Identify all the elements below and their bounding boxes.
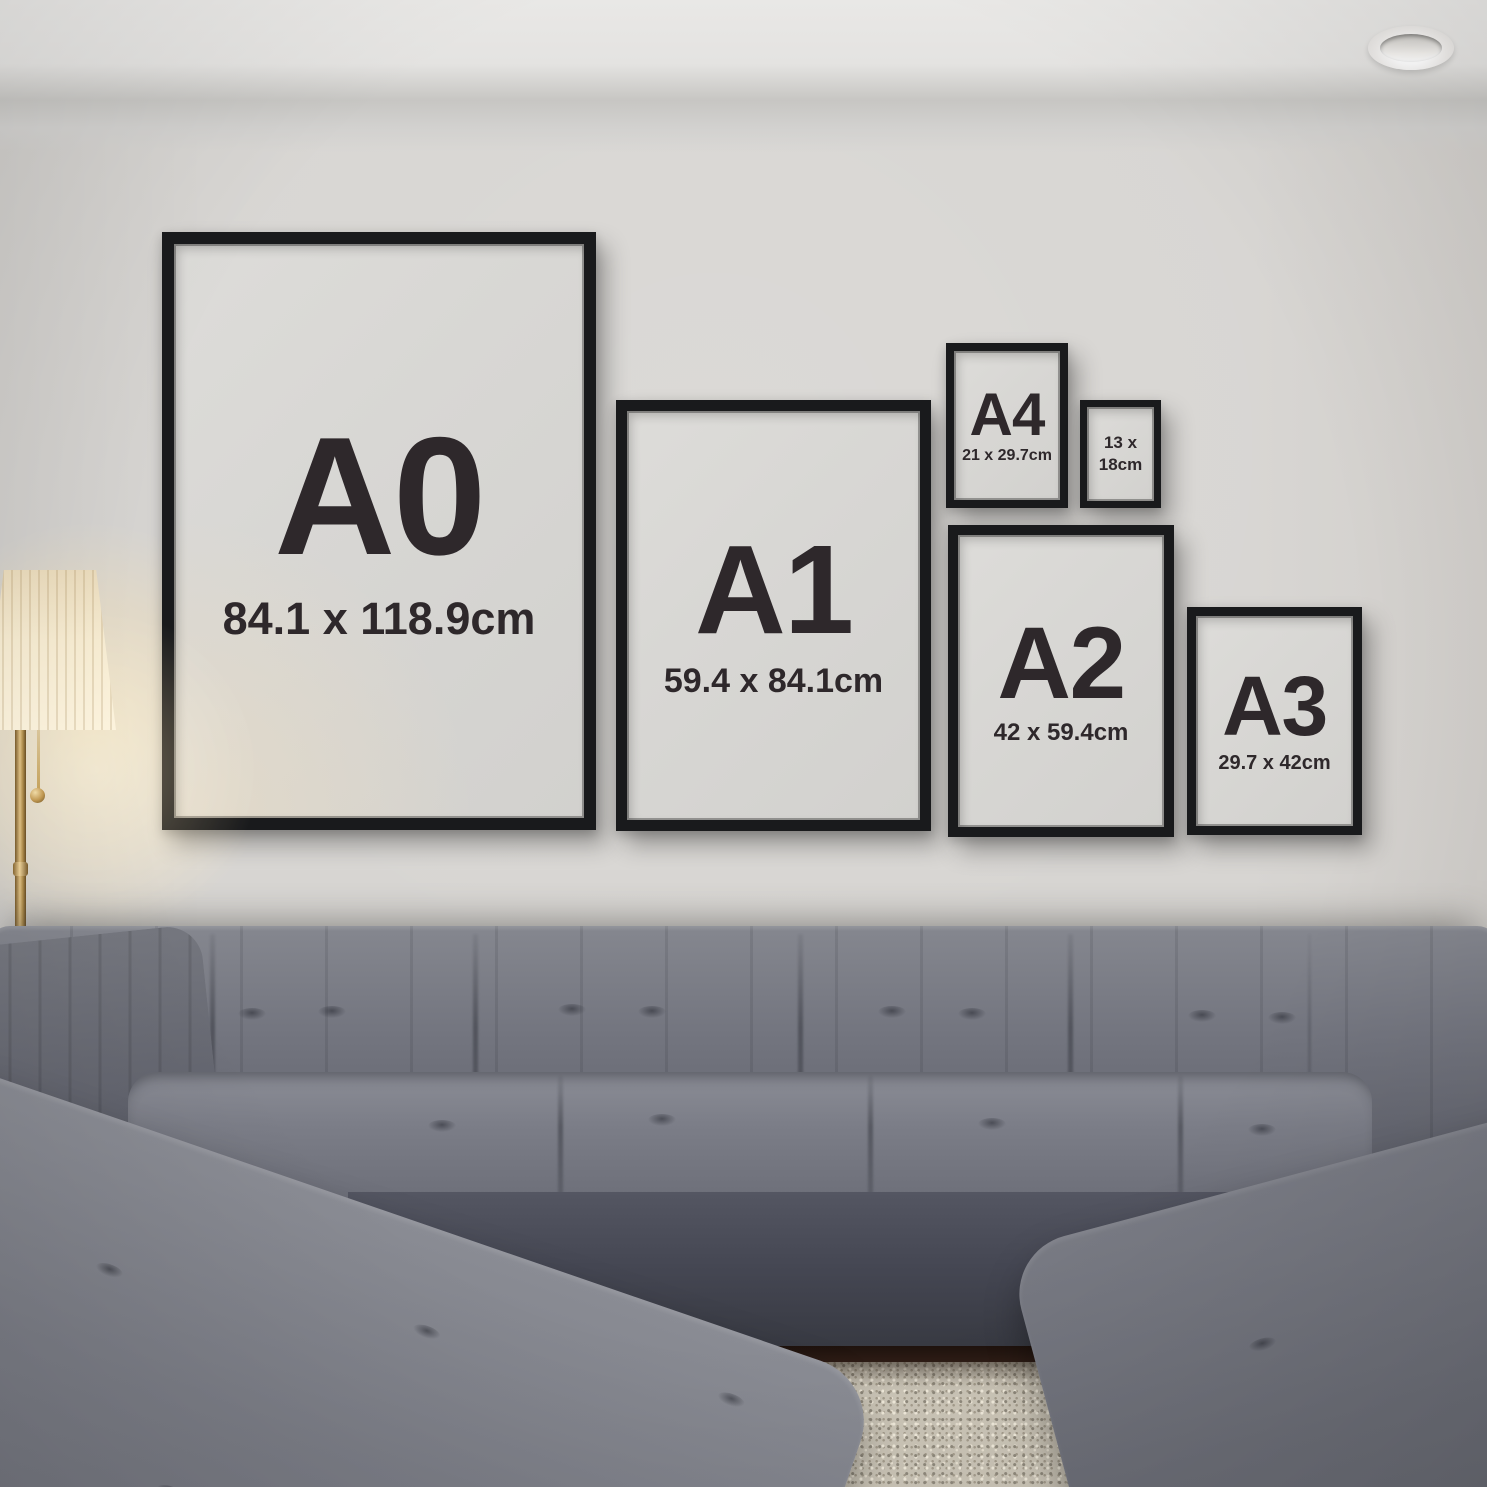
frame-a2-paper: A2 42 x 59.4cm <box>958 535 1164 827</box>
frame-a2-label: A2 <box>997 615 1124 712</box>
sofa-seam <box>558 1076 563 1204</box>
sofa-tuft <box>1188 1010 1216 1022</box>
frame-a3-size: 29.7 x 42cm <box>1218 752 1330 775</box>
frame-a4: A4 21 x 29.7cm <box>946 343 1068 508</box>
frame-a0-size: 84.1 x 118.9cm <box>223 593 536 645</box>
lamp-pull-ball <box>30 788 45 803</box>
frame-a0-paper: A0 84.1 x 118.9cm <box>174 244 584 818</box>
sofa-tuft <box>318 1006 346 1018</box>
sofa-seam <box>1178 1076 1183 1204</box>
frame-a1-size: 59.4 x 84.1cm <box>664 662 883 701</box>
frame-a3: A3 29.7 x 42cm <box>1187 607 1362 835</box>
sofa-tuft <box>238 1008 266 1020</box>
frame-a3-paper: A3 29.7 x 42cm <box>1196 616 1353 826</box>
living-room-scene: A0 84.1 x 118.9cm A1 59.4 x 84.1cm A4 21… <box>0 0 1487 1487</box>
frame-a4-size: 21 x 29.7cm <box>962 447 1052 465</box>
lamp-pole-joint <box>13 862 28 876</box>
sofa-tuft <box>716 1390 746 1410</box>
sofa-tuft <box>155 1482 185 1487</box>
frame-13x18-paper: 13 x 18cm <box>1087 407 1154 501</box>
sofa-tuft <box>428 1120 456 1132</box>
sofa-tuft <box>1248 1335 1278 1354</box>
lamp-pole <box>15 720 26 942</box>
frame-a4-label: A4 <box>970 386 1045 443</box>
sofa-tuft <box>1248 1124 1276 1136</box>
frame-13x18-size-line2: 18cm <box>1099 454 1142 476</box>
sofa-tuft <box>411 1322 441 1342</box>
sofa-tuft <box>878 1006 906 1018</box>
recessed-ceiling-light <box>1368 26 1454 70</box>
sofa-tuft <box>958 1008 986 1020</box>
frame-a2: A2 42 x 59.4cm <box>948 525 1174 837</box>
frame-a1: A1 59.4 x 84.1cm <box>616 400 931 831</box>
sofa-tuft <box>978 1118 1006 1130</box>
sofa-seam <box>868 1076 873 1204</box>
frame-a0: A0 84.1 x 118.9cm <box>162 232 596 830</box>
lamp-shade <box>0 570 116 730</box>
frame-a2-size: 42 x 59.4cm <box>994 719 1129 747</box>
frame-a1-label: A1 <box>695 530 852 650</box>
sofa-tuft <box>558 1004 586 1016</box>
sofa-tuft <box>638 1006 666 1018</box>
frame-13x18: 13 x 18cm <box>1080 400 1161 508</box>
frame-13x18-size-line1: 13 x <box>1104 432 1137 454</box>
sofa-tuft <box>94 1260 124 1280</box>
frame-a1-paper: A1 59.4 x 84.1cm <box>627 411 920 820</box>
sofa-tuft <box>648 1114 676 1126</box>
frame-a3-label: A3 <box>1222 667 1327 747</box>
frame-a0-label: A0 <box>274 417 484 577</box>
ceiling <box>0 0 1487 152</box>
recessed-light-opening <box>1380 34 1442 62</box>
frame-a4-paper: A4 21 x 29.7cm <box>954 351 1060 500</box>
sofa-tuft <box>1268 1012 1296 1024</box>
